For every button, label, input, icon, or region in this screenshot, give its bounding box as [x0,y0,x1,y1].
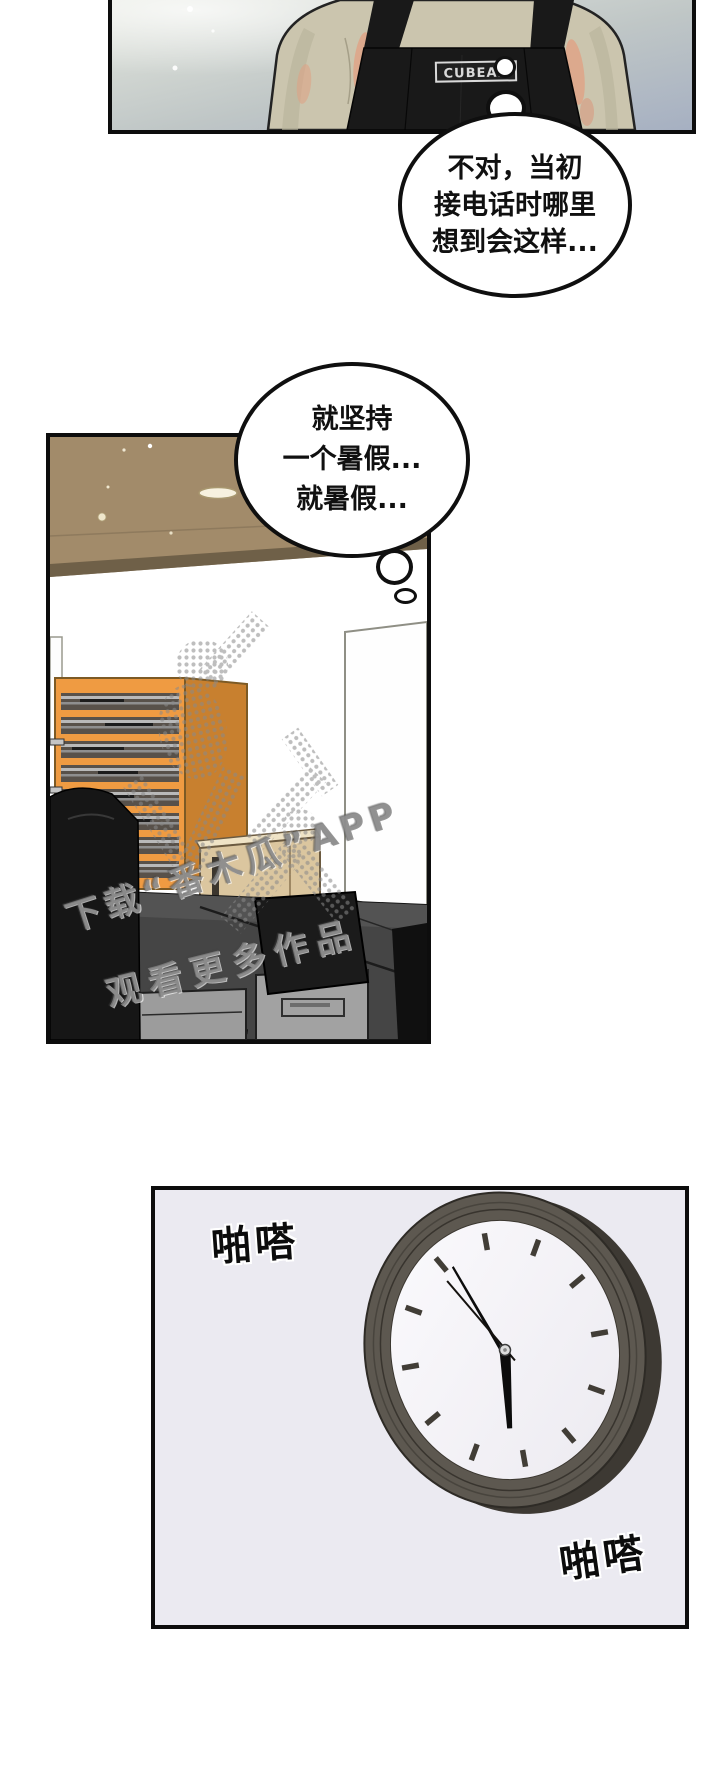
thought-bubble-dot [494,56,516,78]
thought-bubble-bump [376,549,413,585]
whiteboard-right [345,622,427,915]
speech-line: 一个暑假... [283,440,422,480]
office-chair-right [392,923,427,1040]
ceiling-speck [122,448,125,451]
speech-line: 想到会这样... [432,224,598,261]
speech-bubble-1: 不对，当初 接电话时哪里 想到会这样... [398,112,632,298]
ceiling-speck [107,486,110,489]
protruding-tray [50,739,64,745]
drawer-handle [290,1003,330,1007]
speech-bubble-2: 就坚持 一个暑假... 就暑假... [234,362,470,558]
wall-clock [340,1190,685,1539]
speech-line: 不对，当初 [448,150,583,187]
ceiling-light [199,488,237,499]
ceiling-speck [169,531,172,534]
speech-line: 就暑假... [296,480,408,520]
panel-clock: 啪嗒 啪嗒 [151,1186,689,1629]
sfx-tick-top-left: 啪嗒 [209,1209,301,1273]
sparkle-dot [211,29,214,32]
thought-bubble-dot [394,588,417,604]
ceiling-speck [148,444,152,448]
comic-page[interactable]: CUBEAR 不对，当初 接电话时哪里 想到会这样... [0,0,720,1780]
sparkle-dot [187,6,193,12]
ceiling-speck [98,513,106,521]
skin-shading [580,98,594,126]
sfx-tick-bottom-right: 啪嗒 [555,1520,650,1590]
panel-character: CUBEAR [108,0,696,134]
speech-line: 接电话时哪里 [434,187,596,224]
character-illustration [112,0,692,130]
sparkle-dot [173,66,178,71]
speech-line: 就坚持 [312,400,393,440]
